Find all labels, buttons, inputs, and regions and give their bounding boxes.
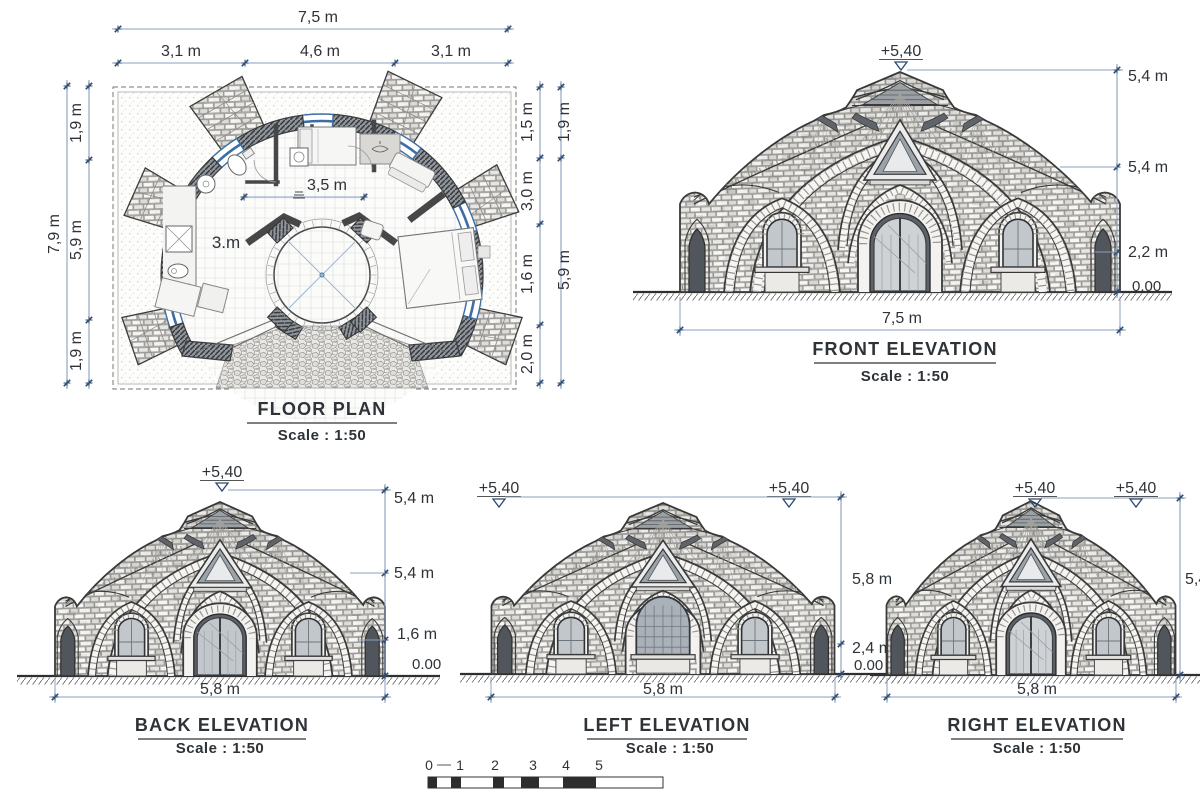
svg-text:5,9 m: 5,9 m: [68, 220, 85, 260]
svg-text:3,5 m: 3,5 m: [307, 177, 347, 194]
svg-text:1: 1: [456, 757, 464, 773]
svg-text:5,4 m: 5,4 m: [1185, 571, 1200, 588]
svg-text:+5,40: +5,40: [881, 43, 922, 60]
svg-text:Scale : 1:50: Scale : 1:50: [626, 740, 715, 757]
svg-text:7,9 m: 7,9 m: [46, 214, 63, 254]
svg-text:5,4 m: 5,4 m: [394, 490, 434, 507]
svg-text:3,1 m: 3,1 m: [161, 43, 201, 60]
svg-text:LEFT ELEVATION: LEFT ELEVATION: [583, 715, 750, 735]
svg-text:5,8 m: 5,8 m: [200, 681, 240, 698]
svg-text:5,8 m: 5,8 m: [1017, 681, 1057, 698]
svg-text:Scale : 1:50: Scale : 1:50: [861, 368, 950, 385]
svg-text:2,0 m: 2,0 m: [519, 334, 536, 374]
svg-text:3.m: 3.m: [212, 233, 240, 252]
svg-text:0: 0: [425, 757, 433, 773]
svg-text:Scale : 1:50: Scale : 1:50: [278, 427, 367, 444]
svg-text:4,6 m: 4,6 m: [300, 43, 340, 60]
svg-text:3: 3: [529, 757, 537, 773]
svg-text:FLOOR PLAN: FLOOR PLAN: [258, 399, 387, 419]
svg-text:1,9 m: 1,9 m: [68, 331, 85, 371]
svg-text:5,9 m: 5,9 m: [556, 250, 573, 290]
svg-text:7,5 m: 7,5 m: [882, 310, 922, 327]
svg-text:+5,40: +5,40: [479, 480, 520, 497]
svg-text:FRONT ELEVATION: FRONT ELEVATION: [812, 339, 997, 359]
svg-text:3,0 m: 3,0 m: [519, 171, 536, 211]
svg-text:5,4 m: 5,4 m: [1128, 159, 1168, 176]
svg-text:Scale : 1:50: Scale : 1:50: [993, 740, 1082, 757]
svg-text:5,8 m: 5,8 m: [643, 681, 683, 698]
svg-text:Scale : 1:50: Scale : 1:50: [176, 740, 265, 757]
svg-text:1,6 m: 1,6 m: [397, 626, 437, 643]
svg-text:7,5 m: 7,5 m: [298, 9, 338, 26]
svg-text:+5,40: +5,40: [1015, 480, 1056, 497]
svg-text:+5,40: +5,40: [202, 464, 243, 481]
svg-text:0.00: 0.00: [1132, 278, 1161, 295]
svg-text:2: 2: [491, 757, 499, 773]
svg-text:RIGHT ELEVATION: RIGHT ELEVATION: [947, 715, 1126, 735]
svg-text:4: 4: [562, 757, 570, 773]
svg-text:1,9 m: 1,9 m: [556, 102, 573, 142]
svg-text:0.00: 0.00: [412, 656, 441, 673]
svg-text:2,2 m: 2,2 m: [1128, 244, 1168, 261]
svg-text:+5,40: +5,40: [769, 480, 810, 497]
svg-text:5,4 m: 5,4 m: [394, 565, 434, 582]
svg-text:1,6 m: 1,6 m: [519, 254, 536, 294]
svg-text:5: 5: [595, 757, 603, 773]
svg-text:3,1 m: 3,1 m: [431, 43, 471, 60]
svg-text:0.00: 0.00: [854, 657, 883, 674]
svg-text:5,8 m: 5,8 m: [852, 571, 892, 588]
svg-text:5,4 m: 5,4 m: [1128, 68, 1168, 85]
svg-text:1,5 m: 1,5 m: [519, 102, 536, 142]
svg-text:+5,40: +5,40: [1116, 480, 1157, 497]
svg-text:BACK ELEVATION: BACK ELEVATION: [135, 715, 309, 735]
svg-text:1,9 m: 1,9 m: [68, 103, 85, 143]
